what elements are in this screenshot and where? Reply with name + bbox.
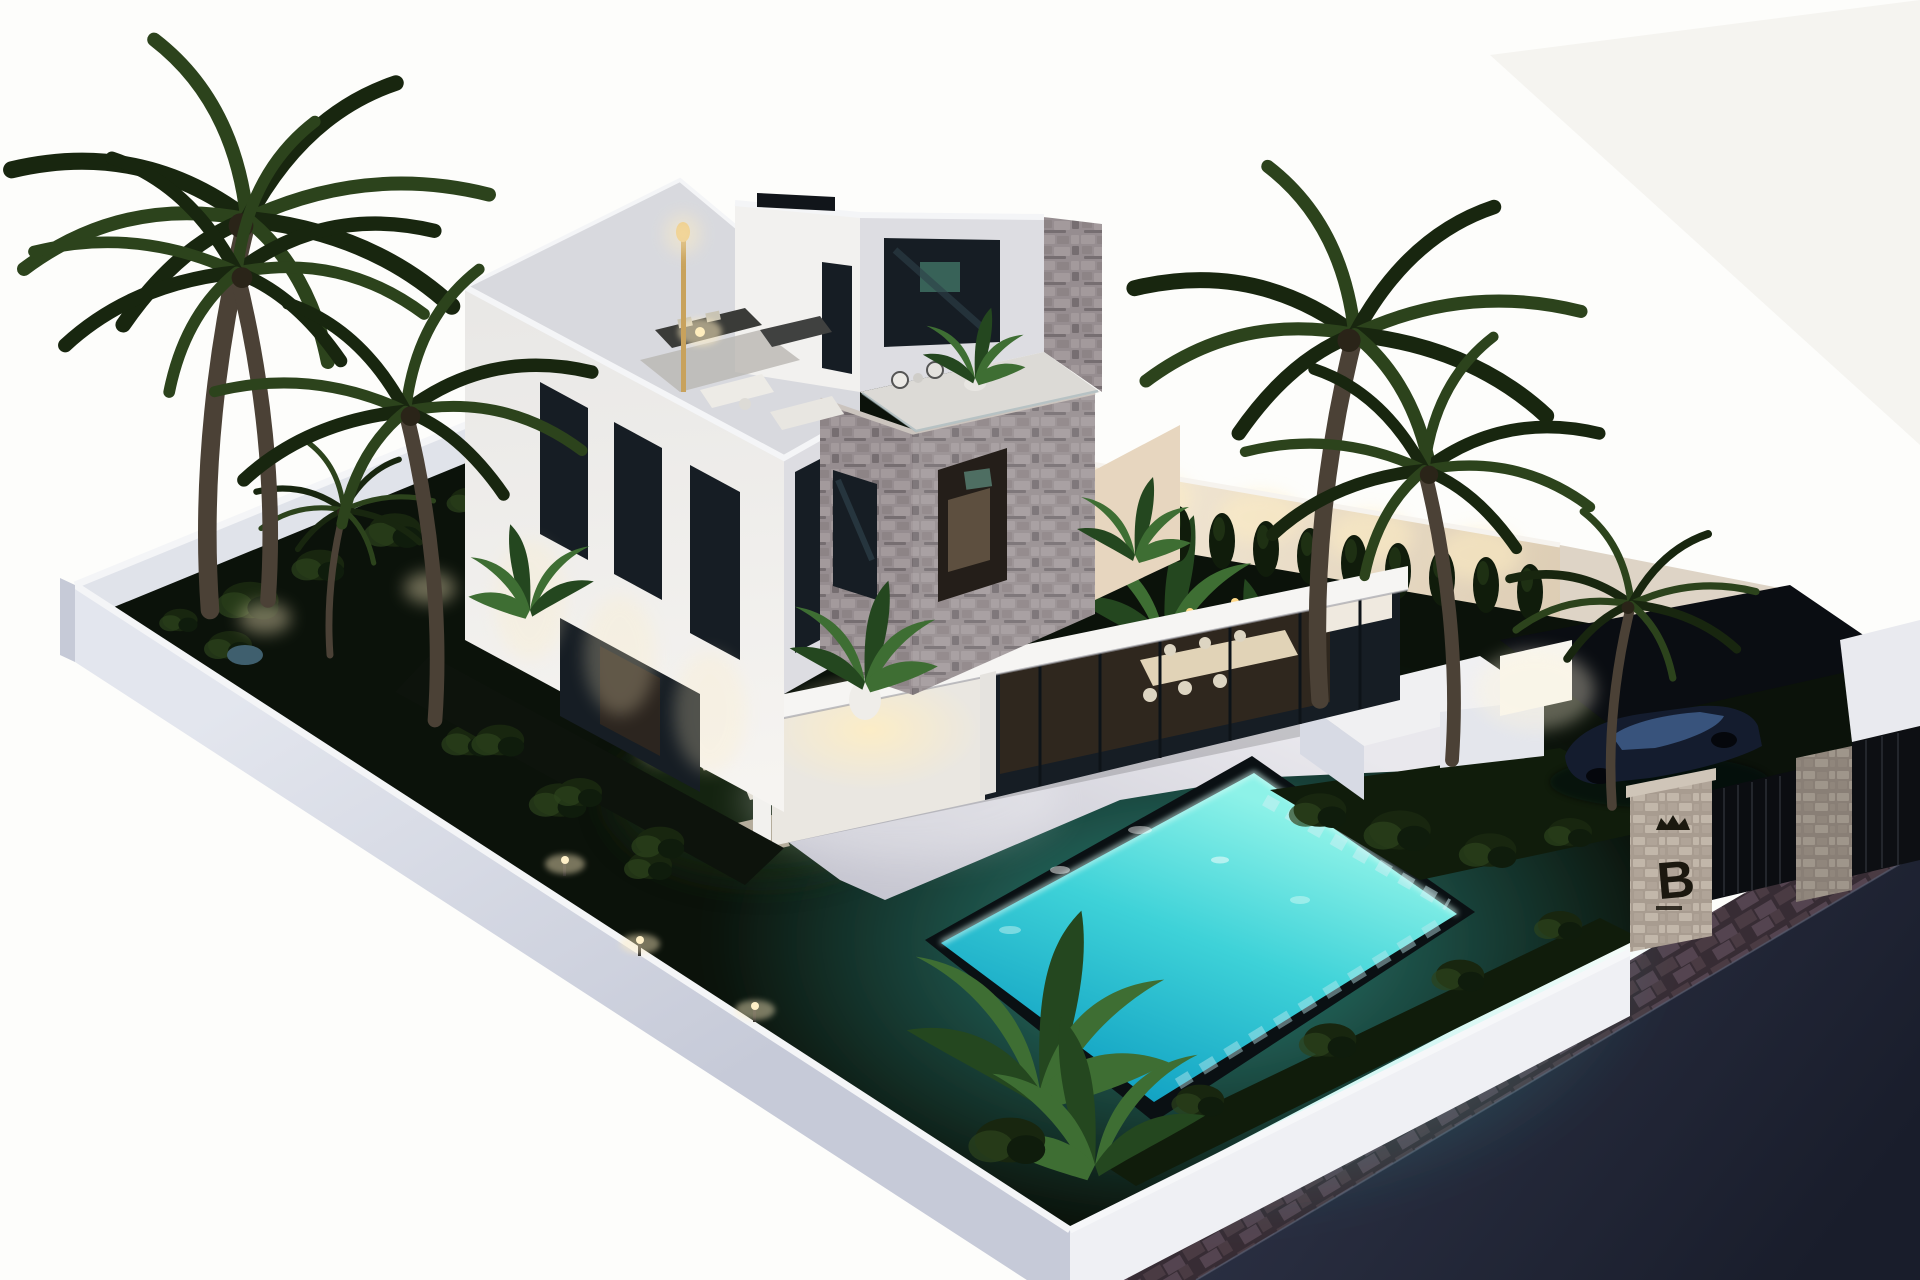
render-canvas: B — [0, 0, 1920, 1280]
villa-render: B — [0, 0, 1920, 1280]
side-fence — [1852, 726, 1920, 876]
entrance-sign-letter: B — [1655, 850, 1697, 911]
agave-plant — [227, 645, 263, 665]
patio-heater — [681, 230, 686, 392]
